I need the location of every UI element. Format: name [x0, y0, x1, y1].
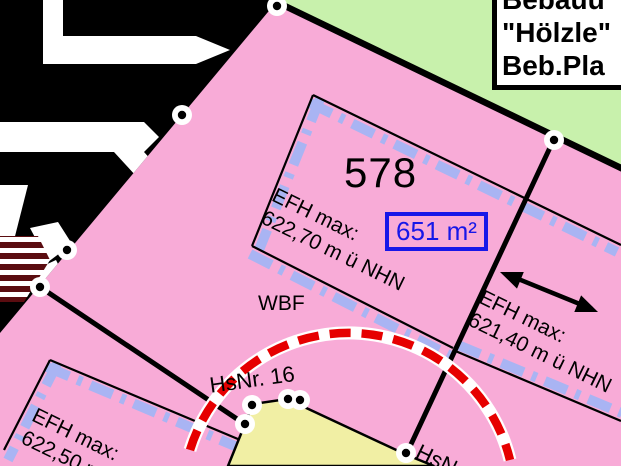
development-plan-map: 578 EFH max: 622,70 m ü NHN 651 m² WBF E…: [0, 0, 621, 466]
plan-title-line-1: Bebauu: [502, 0, 621, 16]
zone-label-wbf: WBF: [258, 292, 305, 316]
plan-title-line-2: "Hölzle": [502, 16, 621, 49]
plot-number-578: 578: [344, 149, 417, 197]
plan-title-line-3: Beb.Pla: [502, 49, 621, 82]
street-shape-lower: [0, 122, 159, 152]
plan-title-box: Bebauu "Hölzle" Beb.Pla: [492, 0, 621, 90]
plot-area-badge: 651 m²: [385, 212, 488, 251]
